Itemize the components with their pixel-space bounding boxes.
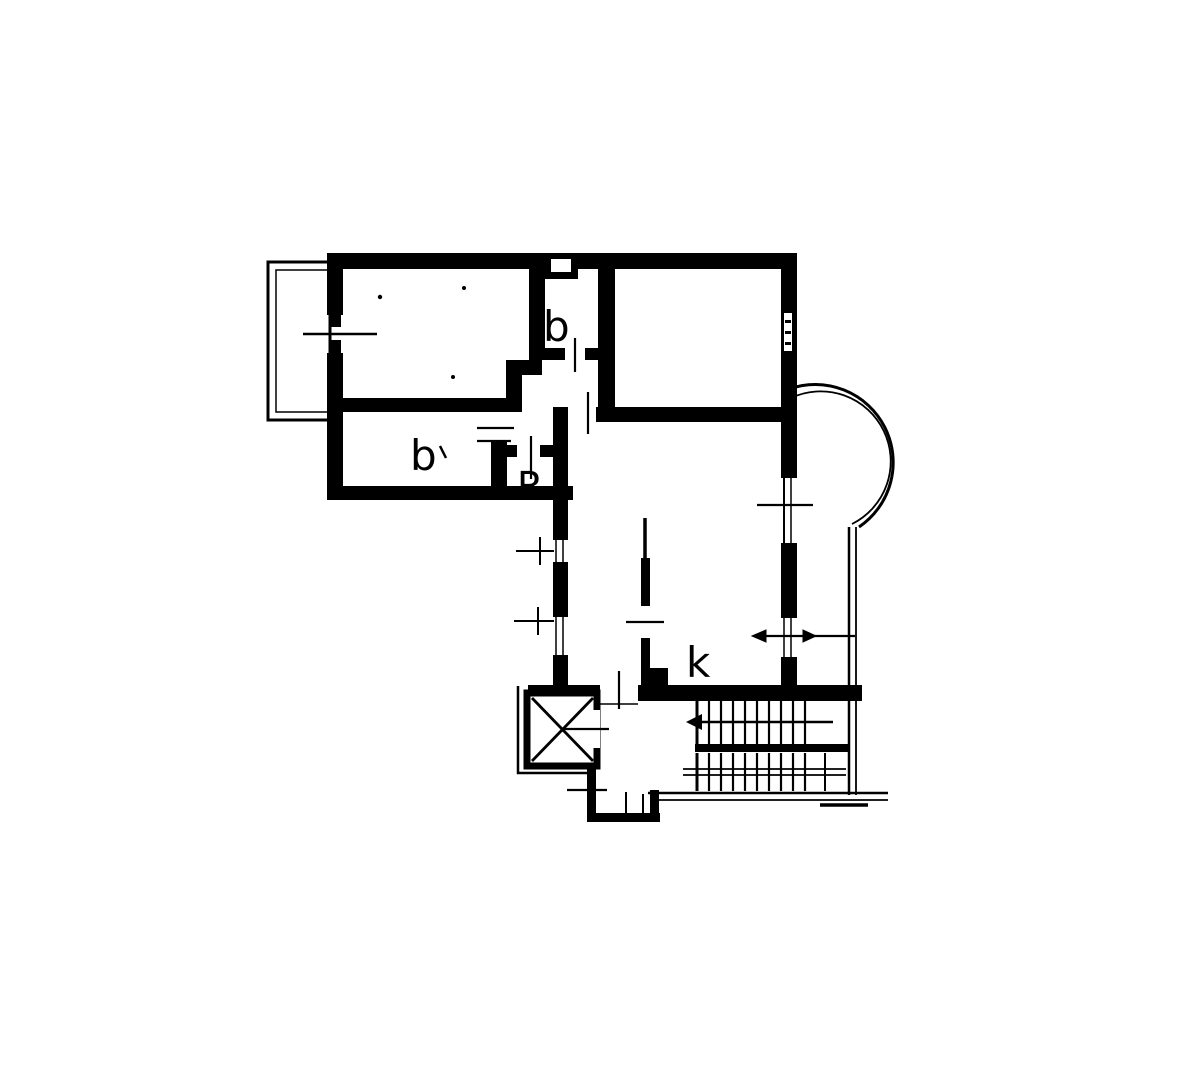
bathroom-duct-niche [551,259,571,272]
exterior-walls [327,253,862,701]
left-balcony [268,262,330,420]
room-label-bathroom-top: b [543,302,570,351]
arrow-left-icon [752,630,766,642]
room-label-bathroom-lower-left: b [410,431,437,480]
room-label-storage: R [517,464,543,508]
balcony-door [752,618,855,657]
left-wall-window [303,312,377,356]
arrow-right-icon [803,630,816,642]
right-wall-window [757,478,813,543]
scanned-floorplan-page: b b R k [0,0,1197,1069]
right-wall-slot-window [784,313,792,351]
stairwell-bottom-outline [648,793,888,805]
floorplan-canvas: b b R k [0,0,1197,1069]
elevator-icon [518,686,609,773]
staircase [683,701,849,791]
room-label-kitchen: k [686,638,711,687]
